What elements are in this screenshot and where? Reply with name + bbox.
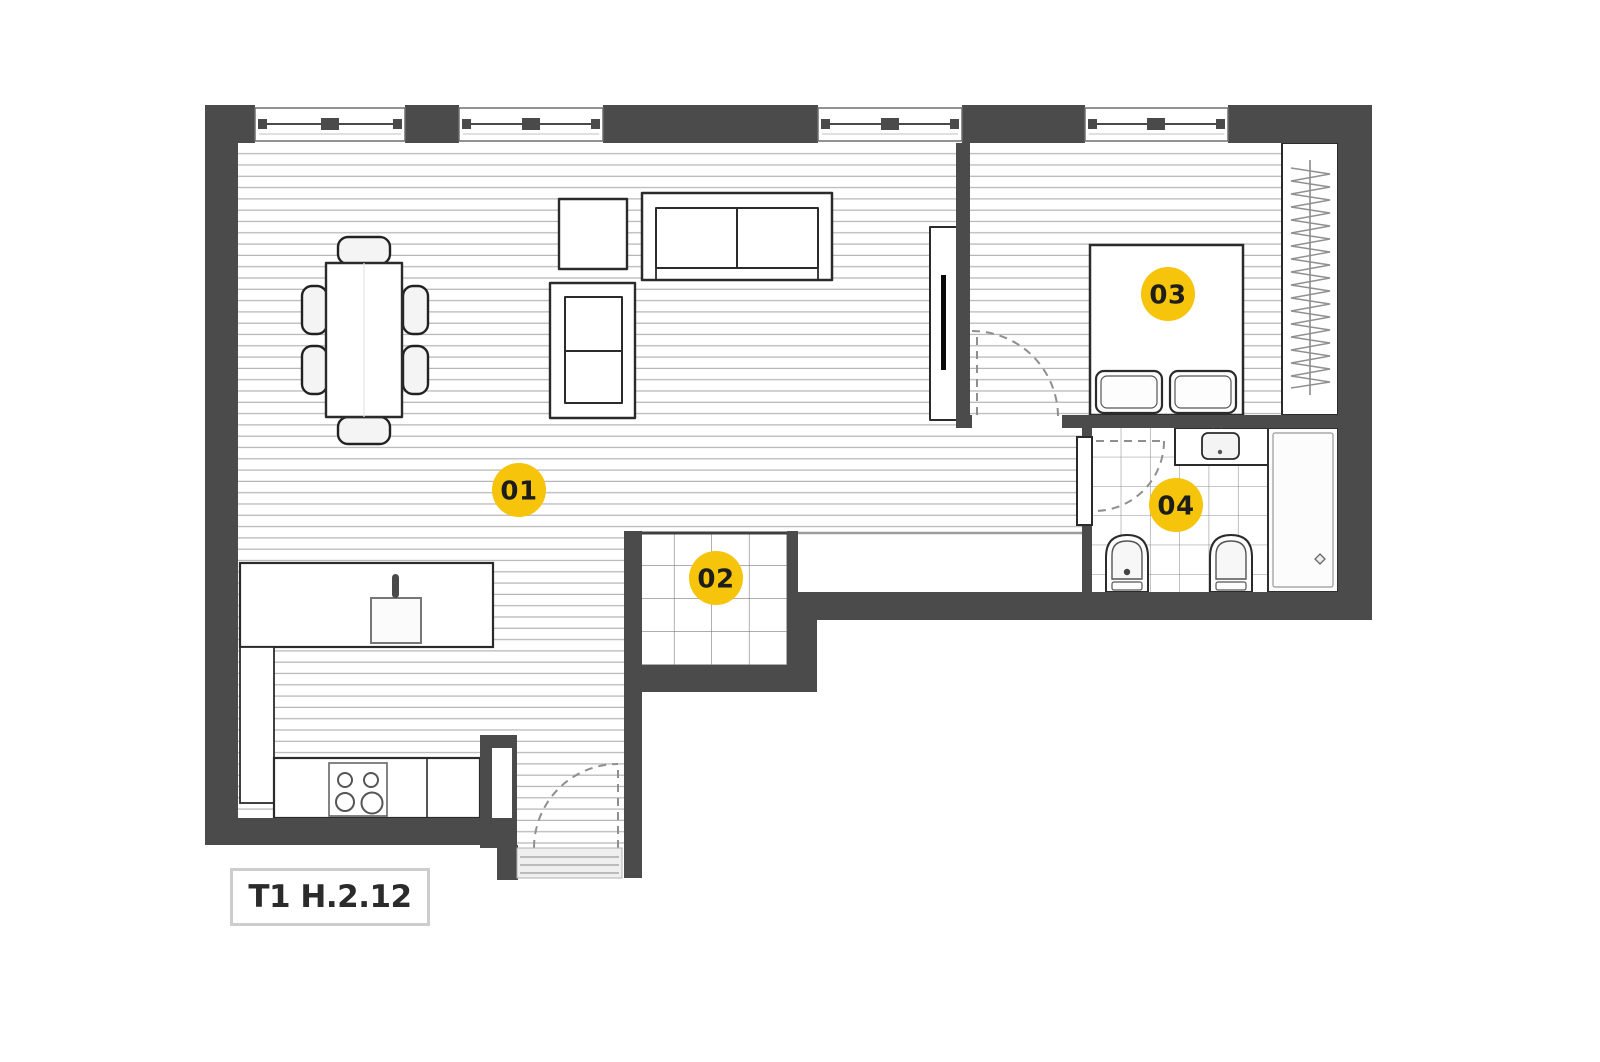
room-marker-01: 01 [492, 463, 546, 517]
tv-console [930, 227, 958, 420]
dining-chair [338, 417, 390, 444]
burner-icon [364, 773, 378, 787]
room-marker-02: 02 [689, 551, 743, 605]
wall-bedroom-south [1062, 415, 1342, 428]
dining-chair [403, 346, 428, 394]
kitchen-sink [371, 598, 421, 643]
burner-icon [362, 793, 383, 814]
window [818, 108, 962, 141]
svg-text:04: 04 [1157, 491, 1194, 521]
unit-title-text: T1 H.2.12 [248, 879, 411, 915]
window [459, 108, 603, 141]
dining-chair [302, 346, 327, 394]
svg-text:02: 02 [697, 564, 734, 594]
sofa [642, 193, 832, 280]
wall-top [405, 105, 459, 143]
dining-chair [338, 237, 390, 264]
wall-step [497, 845, 518, 880]
kitchen-island [240, 563, 493, 647]
wall-vestibule [624, 531, 642, 878]
tv-icon [941, 275, 946, 370]
wardrobe [1282, 143, 1338, 415]
closet-strip [798, 531, 1082, 592]
wall-top [962, 105, 1085, 143]
window [255, 108, 405, 141]
armchair [550, 283, 635, 418]
bathroom-door-leaf [1077, 437, 1092, 525]
entrance-threshold [517, 848, 622, 878]
hall-to-bathroom-floor [956, 428, 1082, 531]
dining-chair [302, 286, 327, 334]
tall-cabinets [240, 647, 274, 803]
duct-shaft [480, 735, 517, 848]
wall-bedroom-divider [956, 143, 970, 417]
wall-bedroom-south [956, 415, 972, 428]
wall-bathroom-west [1082, 524, 1092, 592]
burner-icon [338, 773, 352, 787]
wall-south [798, 592, 1372, 620]
side-table [559, 199, 627, 269]
pillow [1096, 371, 1162, 413]
room-marker-04: 04 [1149, 478, 1203, 532]
dining-chair [403, 286, 428, 334]
room-marker-03: 03 [1141, 267, 1195, 321]
burner-icon [336, 793, 354, 811]
bidet [1210, 535, 1252, 592]
wall-top [603, 105, 818, 143]
faucet-icon [392, 574, 399, 598]
unit-title-label: T1 H.2.12 [230, 868, 430, 926]
svg-text:01: 01 [500, 476, 537, 506]
svg-text:03: 03 [1149, 280, 1186, 310]
wall-bottom [205, 818, 517, 845]
floor-plan-canvas: 01 02 03 04 T1 H.2.12 [0, 0, 1600, 1062]
kitchen-counter [274, 758, 480, 818]
shower [1268, 428, 1338, 592]
toilet [1106, 535, 1148, 592]
pillow [1170, 371, 1236, 413]
window [1085, 108, 1228, 141]
wall-left [205, 105, 238, 845]
wall-right [1338, 105, 1372, 620]
